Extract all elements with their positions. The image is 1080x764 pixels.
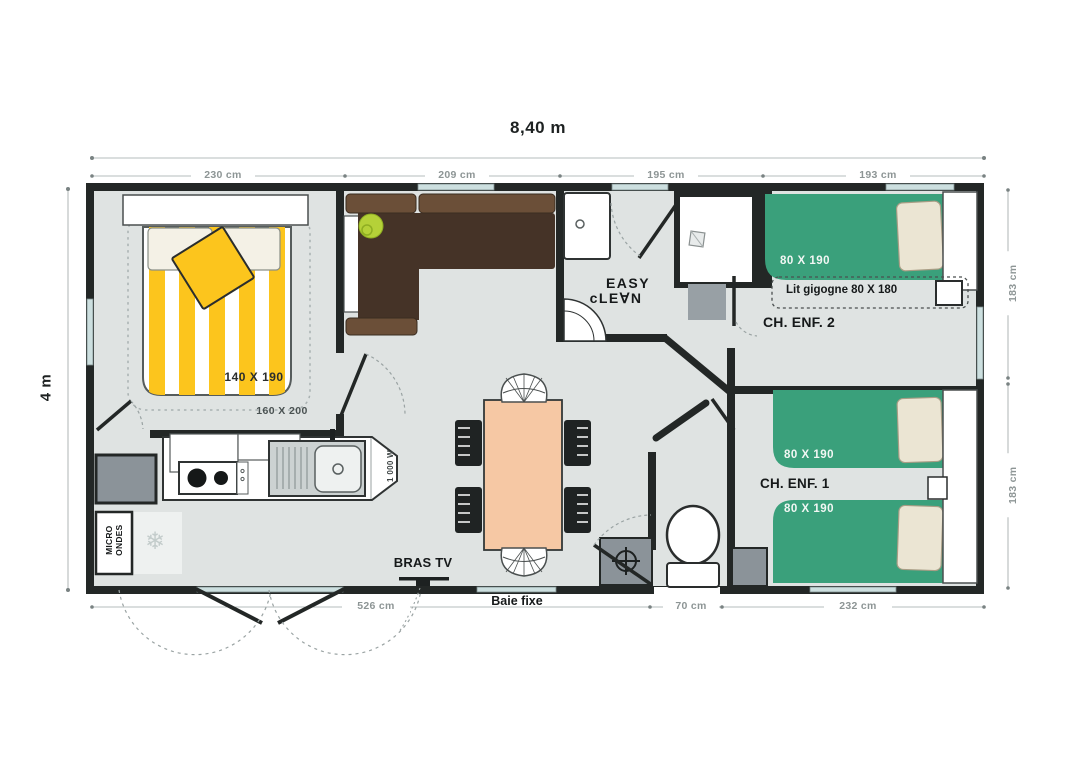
water-heater-box <box>688 284 726 320</box>
dim-232: 232 cm <box>824 600 892 613</box>
kids1-bed-bottom-size-label: 80 X 190 <box>784 504 844 516</box>
kids1-bed-top-size-label: 80 X 190 <box>784 450 844 462</box>
bedside-notch <box>928 477 947 499</box>
easy-clean-logo-line1: EASY <box>596 276 660 290</box>
bay-window-label: Baie fixe <box>482 595 552 608</box>
dim-526: 526 cm <box>342 600 410 613</box>
door-leaf-left <box>196 589 262 623</box>
microwave-label: MICRO ONDES <box>104 518 124 562</box>
easy-clean-logo-line2: cLE∀N <box>584 291 648 305</box>
dim-209: 209 cm <box>425 169 489 182</box>
bedside-shelf <box>936 281 962 305</box>
window-top-living <box>418 184 494 190</box>
chair <box>564 420 591 466</box>
sink-basin <box>315 446 361 492</box>
burner-large <box>188 469 207 488</box>
trundle-bed-label: Lit gigogne 80 X 180 <box>786 285 926 297</box>
dining-table <box>484 400 562 550</box>
window-top-kids2 <box>886 184 954 190</box>
shower-drain <box>689 231 705 247</box>
chair <box>564 487 591 533</box>
chair <box>455 487 482 533</box>
overall-height-dimension: 4 m <box>39 364 54 412</box>
storage-box <box>732 548 767 586</box>
door-leaf-right <box>278 589 344 623</box>
master-bed-size-label: 140 X 190 <box>212 371 296 383</box>
overall-width-dimension: 8,40 m <box>483 119 593 136</box>
headboard <box>943 192 977 290</box>
wardrobe-unit <box>96 455 156 503</box>
french-doors <box>119 589 421 655</box>
sofa-armrest <box>346 318 417 335</box>
dim-193: 193 cm <box>846 169 910 182</box>
tv-bracket-label: BRAS TV <box>380 556 466 569</box>
sofa-back-cushion <box>419 194 555 213</box>
hob-power-label: 1 000 W <box>387 442 395 490</box>
kids-room-2-name: CH. ENF. 2 <box>763 315 858 329</box>
hob-controls <box>237 462 248 494</box>
dim-183-top: 183 cm <box>1007 251 1020 315</box>
kids-room-1-name: CH. ENF. 1 <box>760 477 855 491</box>
window-bottom-kids1 <box>810 587 896 592</box>
sofa-back-cushion <box>346 194 416 213</box>
master-bed-zone-label: 160 X 200 <box>240 406 324 417</box>
toilet-tank <box>667 563 719 587</box>
french-door-glazing <box>197 587 343 592</box>
pillow <box>897 397 943 462</box>
dim-70: 70 cm <box>663 600 719 613</box>
dim-195: 195 cm <box>634 169 698 182</box>
toilet-bowl <box>667 506 719 564</box>
kids2-bed-size-label: 80 X 190 <box>780 256 840 268</box>
sofa-side-shelf <box>344 216 359 312</box>
headboard <box>943 390 977 583</box>
window-right <box>977 307 983 379</box>
faucet <box>330 429 335 440</box>
burner-small <box>214 471 228 485</box>
headboard-shelf <box>123 195 308 225</box>
dim-183-bottom: 183 cm <box>1007 453 1020 517</box>
bay-window-glazing <box>477 587 556 592</box>
snowflake-icon: ❄ <box>145 530 165 554</box>
door-swing-left <box>119 590 271 655</box>
floor-plan-drawing <box>0 0 1080 764</box>
wc-door-opening <box>654 587 720 594</box>
floor-plan-page: 8,40 m 230 cm 209 cm 195 cm 193 cm 4 m 1… <box>0 0 1080 764</box>
pillow <box>897 505 943 570</box>
dim-230: 230 cm <box>191 169 255 182</box>
window-left-bedroom <box>87 299 93 365</box>
pillow <box>896 201 943 271</box>
bathroom-sink <box>564 193 610 259</box>
chair <box>455 420 482 466</box>
window-top-bath <box>612 184 668 190</box>
